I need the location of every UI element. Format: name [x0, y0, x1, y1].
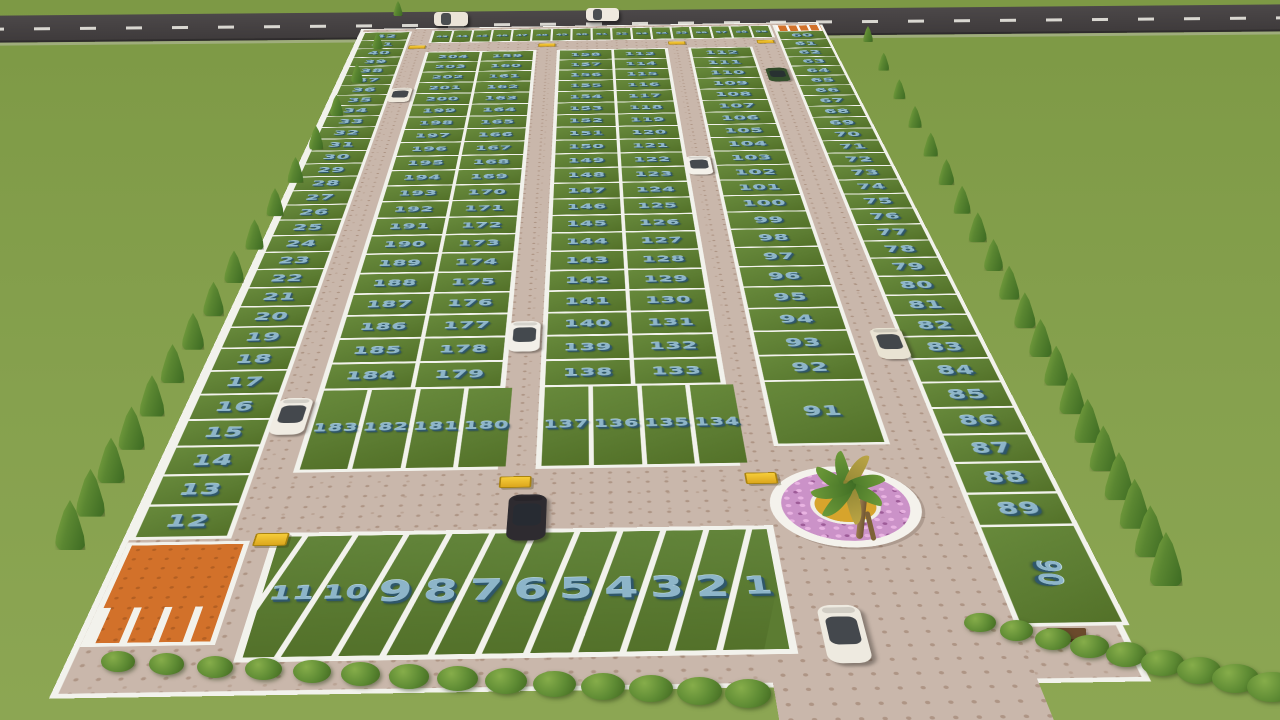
plot-number-label: 65 — [810, 77, 836, 82]
plot-number-label: 144 — [565, 237, 608, 245]
plot-number-label: 34 — [342, 108, 369, 114]
plot-number-label: 127 — [640, 236, 683, 244]
plot-number-label: 59 — [755, 30, 767, 32]
plot-180: 180 — [458, 388, 512, 467]
plot-number-label: 199 — [421, 108, 457, 113]
plot-79: 79 — [871, 258, 946, 276]
plot-number-label: 138 — [562, 367, 613, 379]
plot-number-label: 16 — [212, 400, 255, 413]
cypress-tree — [160, 344, 184, 383]
plot-number-label: 64 — [805, 68, 831, 73]
plot-190: 190 — [367, 235, 442, 253]
plot-number-label: 160 — [489, 63, 521, 68]
plot-number-label: 188 — [371, 279, 418, 288]
plot-number-label: 180 — [463, 420, 510, 431]
plot-number-label: 75 — [862, 197, 895, 205]
plot-156: 156 — [559, 70, 613, 81]
plot-67: 67 — [804, 95, 860, 106]
plot-number-label: 70 — [833, 131, 862, 137]
plot-28: 28 — [294, 177, 357, 191]
cypress-tree — [1149, 532, 1182, 586]
plot-number-label: 49 — [556, 33, 568, 35]
plot-number-label: 69 — [828, 119, 856, 125]
plot-200: 200 — [412, 93, 471, 104]
speed-bump — [668, 41, 686, 44]
plot-number-label: 186 — [358, 322, 408, 332]
plot-number-label: 159 — [491, 54, 523, 59]
plot-96: 96 — [739, 266, 831, 286]
plot-120: 120 — [619, 126, 680, 139]
plot-number-label: 87 — [968, 441, 1015, 456]
plot-136: 136 — [593, 386, 642, 465]
cypress-tree — [1059, 372, 1085, 414]
plot-162: 162 — [474, 81, 530, 92]
plot-111: 111 — [693, 57, 756, 67]
plot-number-label: 122 — [633, 156, 671, 162]
plot-154: 154 — [558, 91, 614, 102]
plot-number-label: 37 — [355, 78, 381, 83]
plot-number-label: 73 — [849, 169, 880, 176]
plot-102: 102 — [717, 165, 795, 180]
plot-number-label: 187 — [365, 299, 414, 309]
car-roof-glass — [512, 503, 541, 525]
cypress-tree — [76, 469, 106, 517]
plot-58: 58 — [731, 26, 752, 37]
plot-number-label: 48 — [536, 34, 548, 36]
plot-number-label: 85 — [945, 388, 989, 401]
bush-tree — [1212, 664, 1259, 693]
plot-63: 63 — [788, 57, 840, 66]
plot-number-label: 114 — [625, 61, 657, 66]
plot-38: 38 — [346, 66, 397, 75]
plot-71: 71 — [823, 140, 884, 152]
block-a-bottom-row: 183182181180 — [300, 388, 500, 470]
plot-176: 176 — [430, 293, 510, 314]
plot-number-label: 170 — [466, 188, 506, 195]
plot-number-label: 202 — [431, 75, 464, 80]
plot-number-label: 81 — [906, 299, 945, 310]
plot-142: 142 — [549, 270, 625, 290]
plot-76: 76 — [851, 209, 920, 224]
plot-number-label: 165 — [479, 119, 515, 125]
plot-number-label: 43 — [436, 35, 448, 37]
car-hood — [821, 607, 855, 613]
plot-112: 112 — [691, 48, 753, 58]
car-roof-glass — [391, 91, 409, 98]
plot-130: 130 — [629, 289, 708, 310]
plot-143: 143 — [550, 251, 624, 270]
plot-44: 44 — [452, 30, 473, 42]
plot-94: 94 — [749, 308, 846, 331]
plot-number-label: 41 — [371, 42, 395, 47]
plot-34: 34 — [327, 105, 383, 116]
plot-166: 166 — [464, 128, 525, 141]
plot-number-label: 54 — [655, 32, 667, 34]
plot-85: 85 — [922, 382, 1012, 407]
plot-number-label: 86 — [956, 413, 1001, 427]
plot-77: 77 — [857, 224, 928, 240]
plot-number-label: 39 — [363, 59, 388, 64]
plot-number-label: 101 — [737, 183, 782, 191]
plot-number-label: 117 — [628, 93, 662, 98]
plot-92: 92 — [759, 355, 863, 381]
plot-number-label: 158 — [570, 52, 601, 56]
plot-number-label: 88 — [980, 470, 1029, 486]
plot-number-label: 35 — [346, 97, 373, 103]
plot-31: 31 — [311, 139, 370, 151]
plot-number-label: 62 — [798, 50, 823, 55]
cypress-tree — [139, 375, 165, 416]
plot-146: 146 — [553, 199, 621, 215]
plot-108: 108 — [700, 88, 767, 100]
plot-25: 25 — [273, 220, 341, 236]
plot-number-label: 50 — [576, 33, 588, 35]
plot-number-label: 193 — [397, 190, 438, 197]
plot-57: 57 — [711, 26, 732, 37]
plot-145: 145 — [552, 215, 622, 232]
plot-66: 66 — [800, 85, 855, 95]
cypress-tree — [878, 53, 889, 71]
plot-number-label: 58 — [735, 31, 747, 33]
plot-53: 53 — [632, 28, 651, 39]
plot-30: 30 — [306, 151, 367, 164]
cypress-tree — [968, 212, 987, 242]
plot-number-label: 95 — [772, 292, 808, 302]
plot-152: 152 — [557, 114, 616, 126]
plot-78: 78 — [864, 241, 937, 258]
plot-number-label: 100 — [741, 199, 787, 207]
plot-number-label: 124 — [635, 186, 675, 193]
plot-number-label: 90 — [1030, 558, 1067, 587]
plot-159: 159 — [480, 51, 533, 61]
speed-bump — [252, 533, 290, 547]
cypress-tree — [1104, 452, 1134, 500]
plot-number-label: 167 — [474, 145, 512, 151]
plot-117: 117 — [616, 90, 673, 101]
plot-number-label: 18 — [233, 353, 274, 365]
block-b-bottom-row: 137136135134 — [541, 384, 734, 465]
plot-number-label: 77 — [875, 228, 910, 237]
plot-number-label: 183 — [311, 423, 359, 434]
plot-169: 169 — [456, 169, 522, 184]
plot-122: 122 — [620, 153, 684, 167]
plot-119: 119 — [618, 113, 678, 125]
speed-bump — [499, 476, 532, 488]
plot-186: 186 — [340, 316, 425, 338]
plot-109: 109 — [698, 78, 764, 89]
plot-54: 54 — [652, 27, 672, 38]
plot-107: 107 — [703, 100, 772, 112]
plot-number-label: 123 — [634, 171, 673, 178]
plot-number-label: 19 — [243, 332, 282, 343]
cypress-tree — [893, 79, 905, 99]
plot-number-label: 176 — [446, 298, 494, 308]
bush-tree — [1177, 657, 1222, 685]
cypress-tree — [1074, 399, 1101, 443]
plot-number-label: 107 — [717, 103, 756, 109]
plot-81: 81 — [886, 295, 966, 315]
plot-83: 83 — [903, 336, 988, 358]
plot-188: 188 — [354, 273, 434, 293]
plot-number-label: 173 — [457, 239, 501, 247]
plot-84: 84 — [912, 359, 1000, 382]
plot-number-label: 197 — [414, 133, 451, 139]
plot-number-label: 136 — [594, 418, 640, 429]
plot-133: 133 — [634, 358, 721, 383]
plot-27: 27 — [287, 190, 352, 204]
plot-number-label: 111 — [707, 60, 743, 65]
orange-zone-comb-marking — [87, 606, 222, 643]
plot-47: 47 — [512, 30, 531, 41]
speed-bump — [408, 45, 426, 49]
plot-number-label: 51 — [596, 33, 608, 35]
plot-number-label: 201 — [428, 85, 462, 90]
cypress-tree — [999, 266, 1020, 300]
plot-number-label: 204 — [437, 54, 469, 59]
plot-64: 64 — [792, 66, 845, 76]
plot-86: 86 — [932, 408, 1026, 434]
plot-49: 49 — [552, 29, 570, 40]
plot-87: 87 — [943, 434, 1040, 462]
plot-72: 72 — [828, 153, 891, 166]
plot-number-label: 141 — [564, 296, 611, 306]
plot-number-label: 191 — [387, 222, 430, 230]
plot-number-label: 164 — [481, 107, 516, 112]
plot-91: 91 — [765, 381, 885, 444]
car-roof-glass — [875, 334, 904, 349]
plot-number-label: 142 — [564, 276, 609, 285]
plot-number-label: 189 — [377, 259, 423, 268]
plot-number-label: 52 — [616, 32, 628, 34]
plot-121: 121 — [620, 139, 682, 152]
plot-number-label: 113 — [624, 52, 655, 56]
plot-128: 128 — [627, 250, 702, 269]
plot-50: 50 — [573, 29, 591, 40]
plot-80: 80 — [878, 276, 955, 295]
plot-number-label: 67 — [818, 98, 845, 104]
plot-41: 41 — [358, 40, 407, 48]
plot-number-label: 97 — [762, 252, 796, 261]
plot-number-label: 192 — [392, 206, 434, 213]
plot-17: 17 — [201, 371, 287, 394]
plot-204: 204 — [426, 52, 480, 62]
plot-number-label: 120 — [631, 129, 667, 135]
plot-number-label: 128 — [641, 255, 686, 264]
plot-number-label: 131 — [647, 317, 696, 327]
plot-18: 18 — [212, 348, 295, 370]
plot-number-label: 56 — [695, 31, 707, 33]
plot-70: 70 — [818, 128, 878, 140]
plot-number-label: 22 — [269, 273, 305, 283]
cypress-tree — [1089, 425, 1118, 471]
plot-68: 68 — [808, 106, 866, 117]
car-roof-glass — [689, 160, 709, 169]
plot-197: 197 — [401, 129, 464, 142]
plot-number-label: 20 — [252, 311, 290, 322]
plot-99: 99 — [727, 211, 811, 228]
plot-number-label: 161 — [488, 74, 521, 79]
car-hood — [513, 496, 543, 501]
plot-number-label: 172 — [460, 221, 503, 229]
plot-106: 106 — [705, 112, 776, 125]
cypress-tree — [182, 313, 205, 350]
plot-191: 191 — [372, 218, 445, 235]
plot-97: 97 — [735, 247, 824, 266]
plot-number-label: 46 — [496, 34, 508, 36]
plot-168: 168 — [459, 155, 523, 169]
plot-118: 118 — [617, 102, 675, 114]
plot-number-label: 25 — [291, 223, 324, 231]
plot-158: 158 — [560, 50, 612, 60]
plot-60: 60 — [778, 31, 827, 39]
cypress-tree — [203, 282, 225, 317]
plot-194: 194 — [388, 170, 455, 185]
plot-number-label: 78 — [882, 244, 917, 253]
plot-147: 147 — [553, 183, 619, 198]
car-hood — [688, 157, 707, 159]
plot-151: 151 — [556, 127, 616, 140]
car-roof-glass — [824, 616, 862, 644]
car-hood — [513, 322, 537, 325]
plot-126: 126 — [624, 214, 695, 231]
plot-number-label: 154 — [569, 94, 603, 99]
plot-129: 129 — [628, 269, 705, 289]
plot-113: 113 — [614, 49, 666, 59]
plot-115: 115 — [615, 69, 670, 79]
plot-40: 40 — [354, 49, 403, 58]
plot-number-label: 149 — [567, 157, 605, 163]
plot-39: 39 — [350, 57, 400, 66]
plot-19: 19 — [222, 327, 303, 348]
plot-number-label: 112 — [704, 50, 739, 55]
plot-61: 61 — [781, 39, 831, 48]
plot-number-label: 184 — [344, 370, 397, 382]
plot-number-label: 169 — [469, 173, 508, 180]
plot-number-label: 2 — [693, 572, 732, 601]
plot-150: 150 — [555, 140, 617, 153]
plot-number-label: 76 — [868, 212, 902, 220]
plot-116: 116 — [616, 79, 672, 90]
plot-number-label: 12 — [162, 513, 212, 530]
plot-number-label: 47 — [516, 34, 528, 36]
cypress-tree — [1044, 346, 1069, 386]
plot-number-label: 119 — [630, 117, 666, 123]
plot-number-label: 83 — [925, 341, 966, 353]
plot-number-label: 55 — [675, 32, 687, 34]
plot-number-label: 89 — [994, 500, 1045, 517]
car-road-b-c — [685, 156, 713, 175]
plot-127: 127 — [625, 231, 698, 249]
bottom-plot-row: 1110987654321 — [233, 525, 798, 663]
plot-number-label: 99 — [753, 216, 785, 224]
plot-number-label: 103 — [730, 154, 773, 161]
plot-185: 185 — [333, 339, 420, 363]
plot-number-label: 80 — [898, 280, 936, 290]
plot-number-label: 155 — [569, 83, 602, 88]
plot-16: 16 — [189, 394, 278, 419]
plot-65: 65 — [796, 75, 850, 85]
plot-number-label: 10 — [320, 583, 371, 603]
plot-199: 199 — [409, 105, 469, 117]
plot-98: 98 — [731, 229, 817, 247]
plot-number-label: 109 — [712, 80, 749, 85]
plot-number-label: 125 — [637, 202, 678, 209]
plot-number-label: 185 — [351, 345, 403, 356]
plot-number-label: 171 — [463, 204, 504, 211]
plot-number-label: 92 — [790, 361, 830, 373]
plot-148: 148 — [554, 168, 619, 183]
car-bottom-road-dark — [506, 494, 547, 541]
plot-number-label: 126 — [638, 218, 680, 226]
plot-55: 55 — [671, 27, 691, 38]
plot-149: 149 — [555, 154, 618, 168]
plot-161: 161 — [476, 71, 531, 82]
plot-number-label: 104 — [727, 140, 769, 147]
speed-bump — [756, 40, 774, 43]
plot-number-label: 174 — [454, 258, 499, 267]
plot-20: 20 — [232, 307, 310, 327]
plot-22: 22 — [249, 269, 323, 287]
plot-number-label: 133 — [651, 365, 703, 377]
plot-24: 24 — [266, 235, 336, 251]
plot-number-label: 32 — [332, 130, 360, 136]
cypress-tree — [984, 239, 1004, 271]
plot-number-label: 23 — [276, 256, 311, 265]
plot-number-label: 182 — [362, 422, 410, 433]
plot-101: 101 — [720, 179, 800, 195]
plot-number-label: 135 — [644, 417, 691, 428]
plot-number-label: 40 — [367, 51, 391, 56]
plot-number-label: 102 — [733, 168, 777, 175]
plot-172: 172 — [446, 217, 517, 234]
plot-73: 73 — [833, 166, 897, 180]
plot-131: 131 — [631, 311, 713, 333]
plot-178: 178 — [420, 337, 505, 361]
plot-number-label: 15 — [201, 426, 246, 440]
plot-105: 105 — [708, 124, 780, 137]
plot-177: 177 — [425, 314, 507, 336]
plot-number-label: 153 — [569, 106, 603, 111]
plot-32: 32 — [317, 127, 375, 139]
plot-number-label: 178 — [438, 344, 489, 355]
plot-74: 74 — [839, 179, 905, 193]
plot-number-label: 163 — [484, 95, 518, 100]
cypress-tree — [953, 186, 970, 214]
plot-59: 59 — [750, 26, 772, 37]
cypress-tree — [923, 133, 938, 157]
plot-52: 52 — [612, 28, 631, 39]
plot-139: 139 — [546, 335, 629, 359]
orange-hatch-zone-bottom-left — [80, 541, 250, 647]
plot-110: 110 — [695, 67, 760, 78]
plot-number-label: 14 — [189, 453, 236, 468]
plot-number-label: 175 — [450, 277, 496, 286]
plot-number-label: 137 — [543, 419, 589, 430]
plot-138: 138 — [545, 360, 630, 385]
cypress-tree — [224, 251, 244, 284]
plot-173: 173 — [442, 234, 515, 252]
plot-23: 23 — [258, 252, 330, 269]
plot-number-label: 132 — [649, 340, 699, 351]
plot-number-label: 24 — [284, 239, 318, 248]
plot-number-label: 156 — [570, 72, 602, 77]
plot-number-label: 13 — [176, 482, 224, 498]
plot-number-label: 146 — [566, 203, 607, 210]
plot-number-label: 30 — [321, 154, 351, 161]
plot-number-label: 74 — [855, 183, 887, 191]
plot-number-label: 108 — [714, 91, 752, 97]
car-hood — [393, 88, 410, 90]
